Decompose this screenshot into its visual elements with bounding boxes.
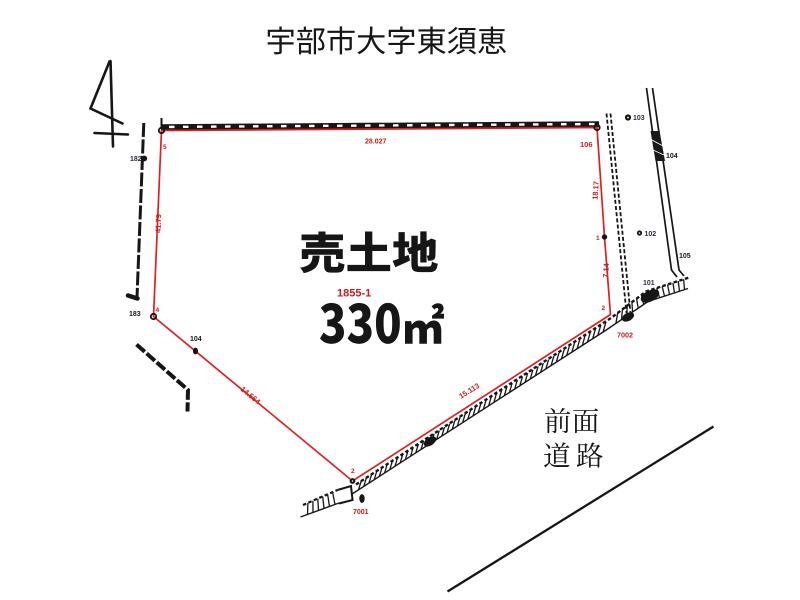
svg-text:102: 102 [645, 231, 657, 238]
svg-text:104: 104 [666, 153, 678, 160]
svg-text:104: 104 [190, 336, 202, 343]
svg-text:1855-1: 1855-1 [337, 288, 371, 300]
svg-text:15.113: 15.113 [457, 381, 481, 401]
svg-text:28.027: 28.027 [365, 139, 387, 146]
svg-text:5: 5 [163, 144, 167, 151]
svg-text:105: 105 [679, 253, 691, 260]
svg-text:7001: 7001 [353, 509, 369, 516]
svg-text:7.14: 7.14 [601, 262, 611, 278]
svg-text:183: 183 [129, 311, 141, 318]
svg-text:18.17: 18.17 [591, 181, 601, 200]
svg-text:2: 2 [602, 305, 606, 312]
svg-text:106: 106 [580, 140, 593, 149]
svg-text:7002: 7002 [617, 331, 633, 340]
svg-text:2: 2 [351, 468, 355, 475]
svg-text:41.79: 41.79 [154, 214, 164, 233]
svg-text:101: 101 [643, 280, 655, 287]
svg-text:1: 1 [596, 235, 600, 242]
svg-text:182: 182 [130, 156, 142, 163]
svg-text:103: 103 [633, 115, 645, 122]
svg-text:4: 4 [156, 307, 160, 314]
